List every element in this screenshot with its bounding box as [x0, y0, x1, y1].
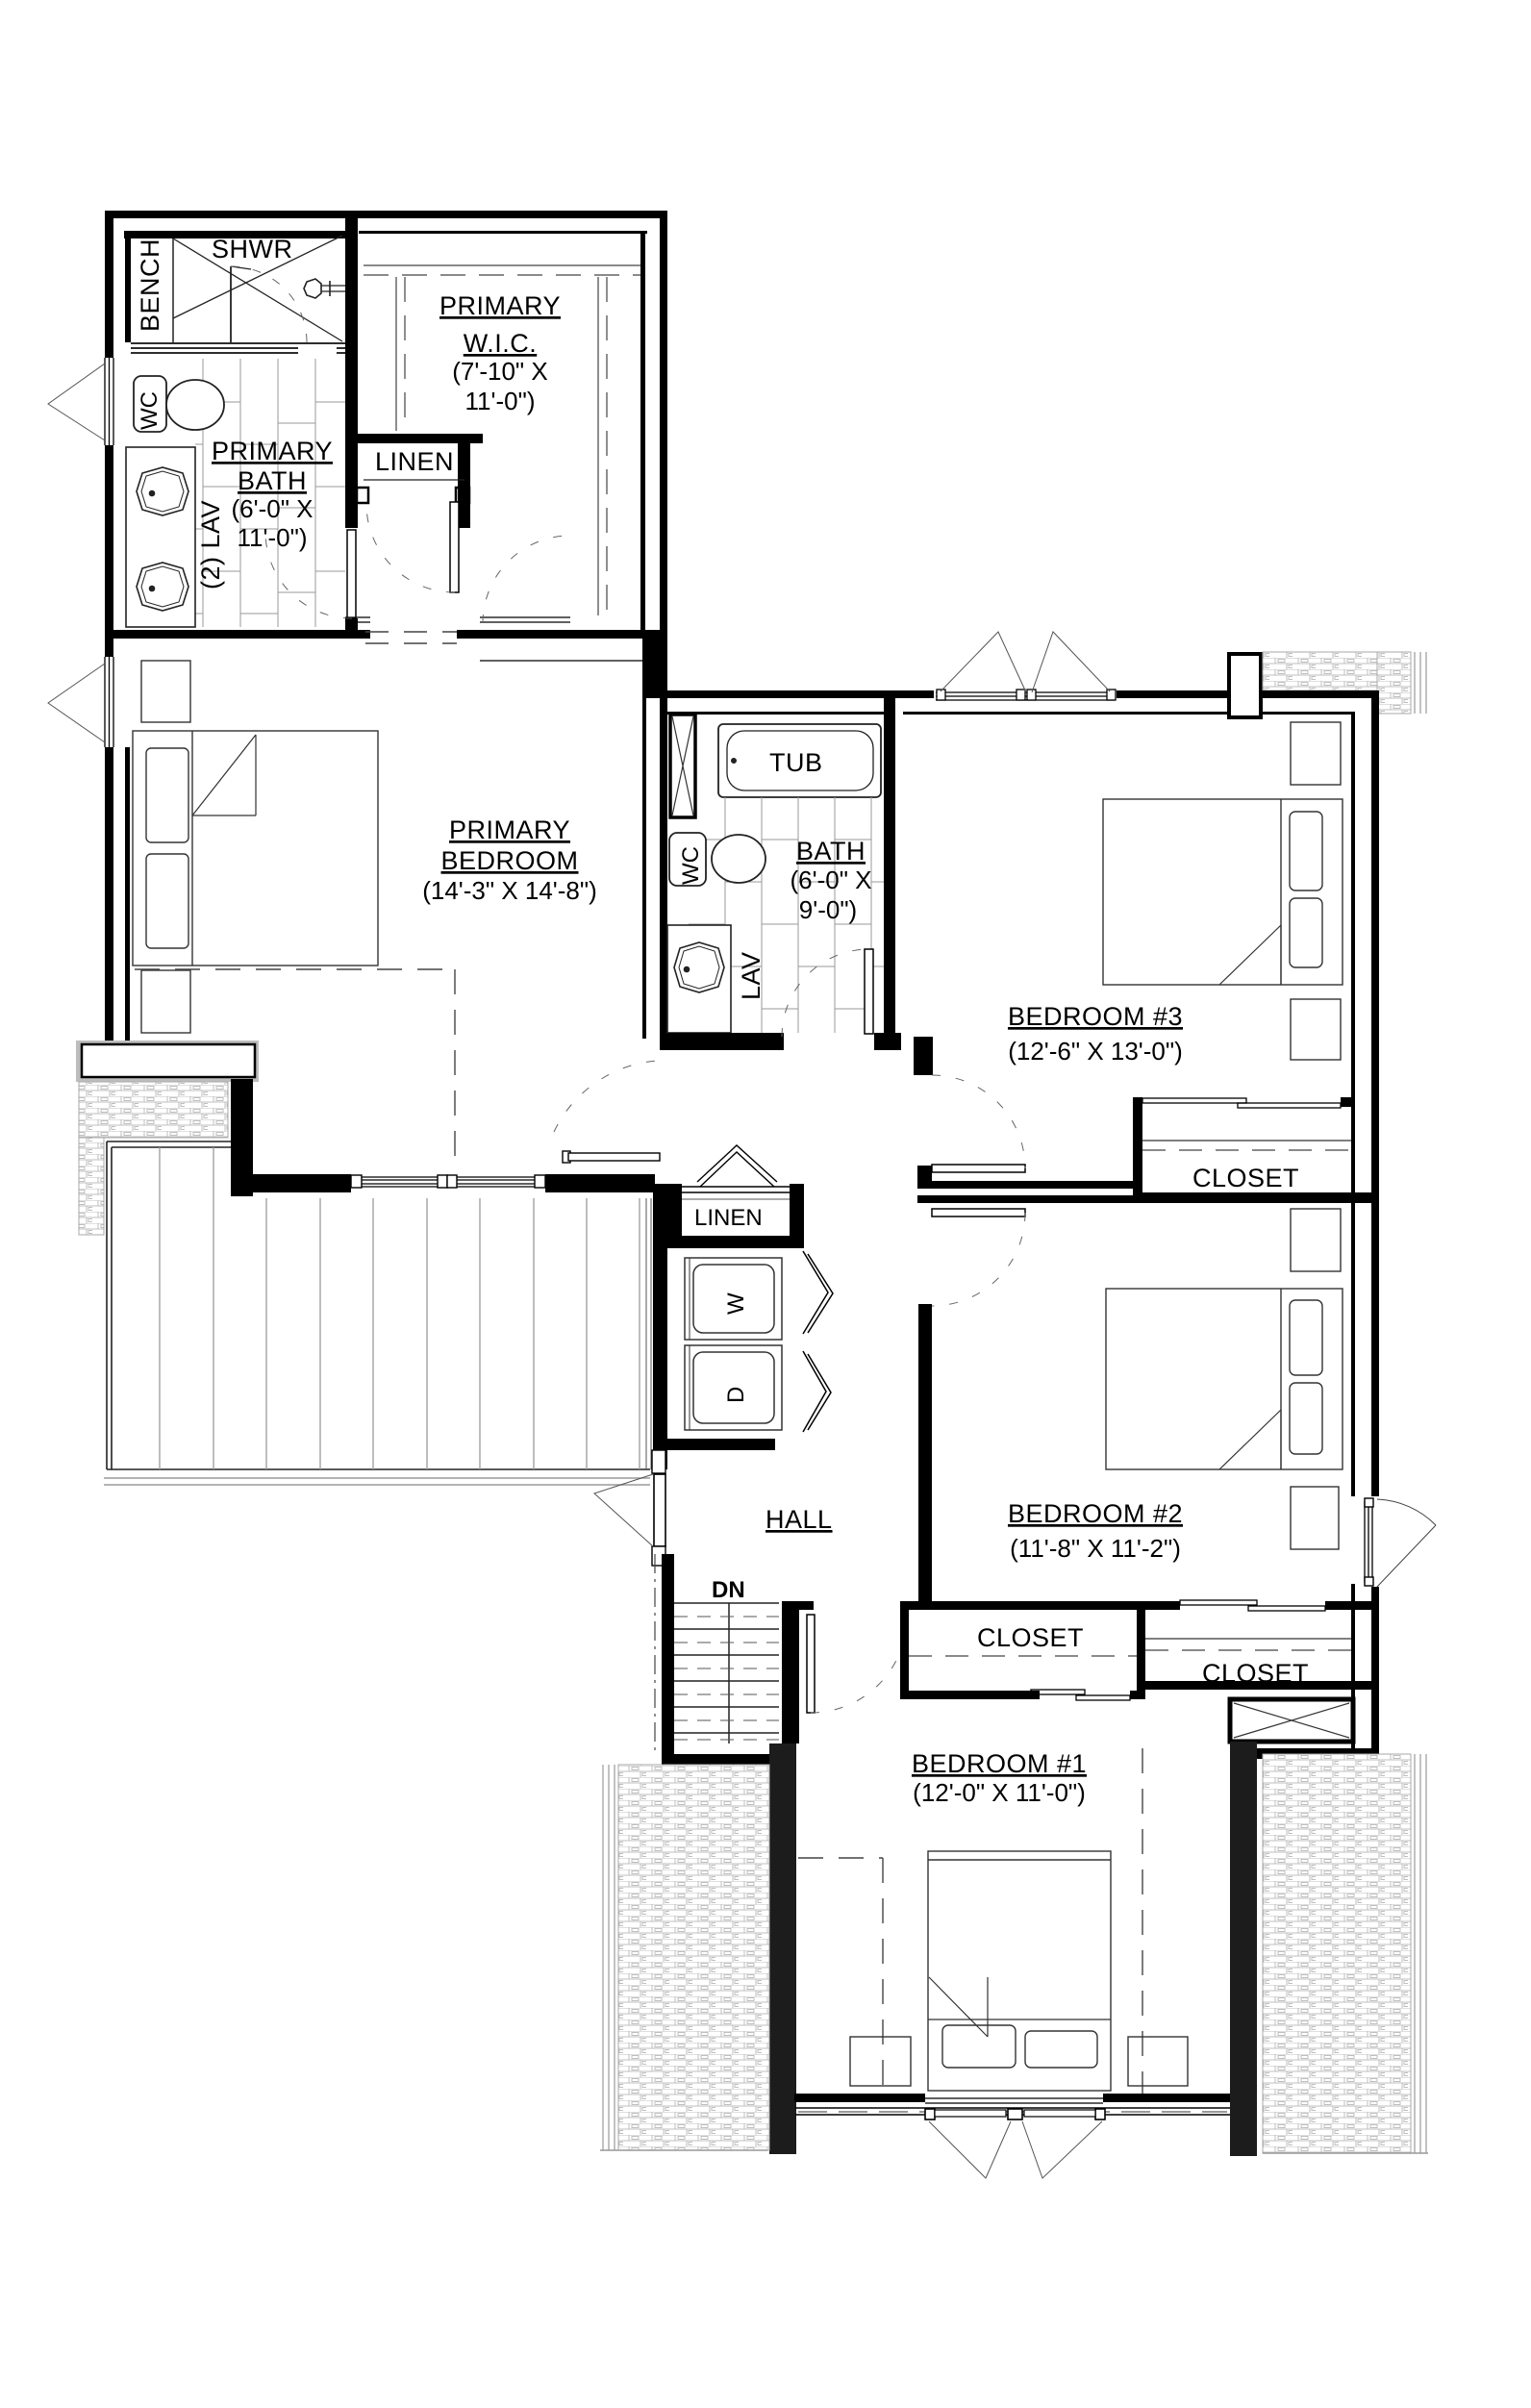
svg-text:DN: DN [712, 1577, 745, 1603]
svg-text:PRIMARY: PRIMARY [212, 437, 333, 465]
svg-text:(7'-10" X: (7'-10" X [452, 357, 547, 386]
svg-text:BEDROOM #3: BEDROOM #3 [1008, 1002, 1183, 1031]
svg-text:(12'-0" X 11'-0"): (12'-0" X 11'-0") [913, 1778, 1086, 1807]
svg-text:(12'-6" X 13'-0"): (12'-6" X 13'-0") [1008, 1037, 1183, 1066]
svg-text:PRIMARY: PRIMARY [439, 291, 561, 320]
svg-text:D: D [723, 1387, 749, 1403]
svg-text:SHWR: SHWR [212, 235, 293, 263]
svg-text:TUB: TUB [769, 748, 823, 777]
svg-text:LAV: LAV [737, 951, 765, 1000]
svg-text:BATH: BATH [238, 466, 307, 495]
svg-text:(6'-0" X: (6'-0" X [791, 865, 872, 894]
svg-text:W: W [723, 1292, 749, 1315]
svg-text:HALL: HALL [765, 1505, 833, 1534]
svg-text:11'-0"): 11'-0") [238, 523, 308, 552]
svg-text:WC: WC [678, 846, 704, 885]
svg-text:BEDROOM #2: BEDROOM #2 [1008, 1499, 1183, 1528]
svg-text:BEDROOM #1: BEDROOM #1 [912, 1749, 1087, 1778]
svg-text:BEDROOM: BEDROOM [440, 846, 578, 875]
svg-text:CLOSET: CLOSET [977, 1623, 1084, 1652]
svg-text:(2) LAV: (2) LAV [196, 500, 225, 589]
svg-text:CLOSET: CLOSET [1192, 1164, 1299, 1192]
svg-text:W.I.C.: W.I.C. [464, 329, 538, 358]
svg-text:LINEN: LINEN [375, 447, 454, 476]
svg-text:LINEN: LINEN [694, 1205, 763, 1231]
svg-text:WC: WC [137, 391, 163, 430]
svg-text:(6'-0" X: (6'-0" X [232, 494, 314, 523]
svg-text:CLOSET: CLOSET [1202, 1659, 1309, 1688]
svg-text:11'-0"): 11'-0") [465, 387, 536, 415]
svg-text:9'-0"): 9'-0") [799, 895, 857, 924]
svg-text:(14'-3" X 14'-8"): (14'-3" X 14'-8") [422, 876, 597, 905]
svg-text:BENCH: BENCH [136, 238, 164, 332]
svg-text:BATH: BATH [796, 837, 866, 865]
svg-text:PRIMARY: PRIMARY [449, 815, 570, 844]
svg-text:(11'-8" X 11'-2"): (11'-8" X 11'-2") [1010, 1534, 1181, 1563]
